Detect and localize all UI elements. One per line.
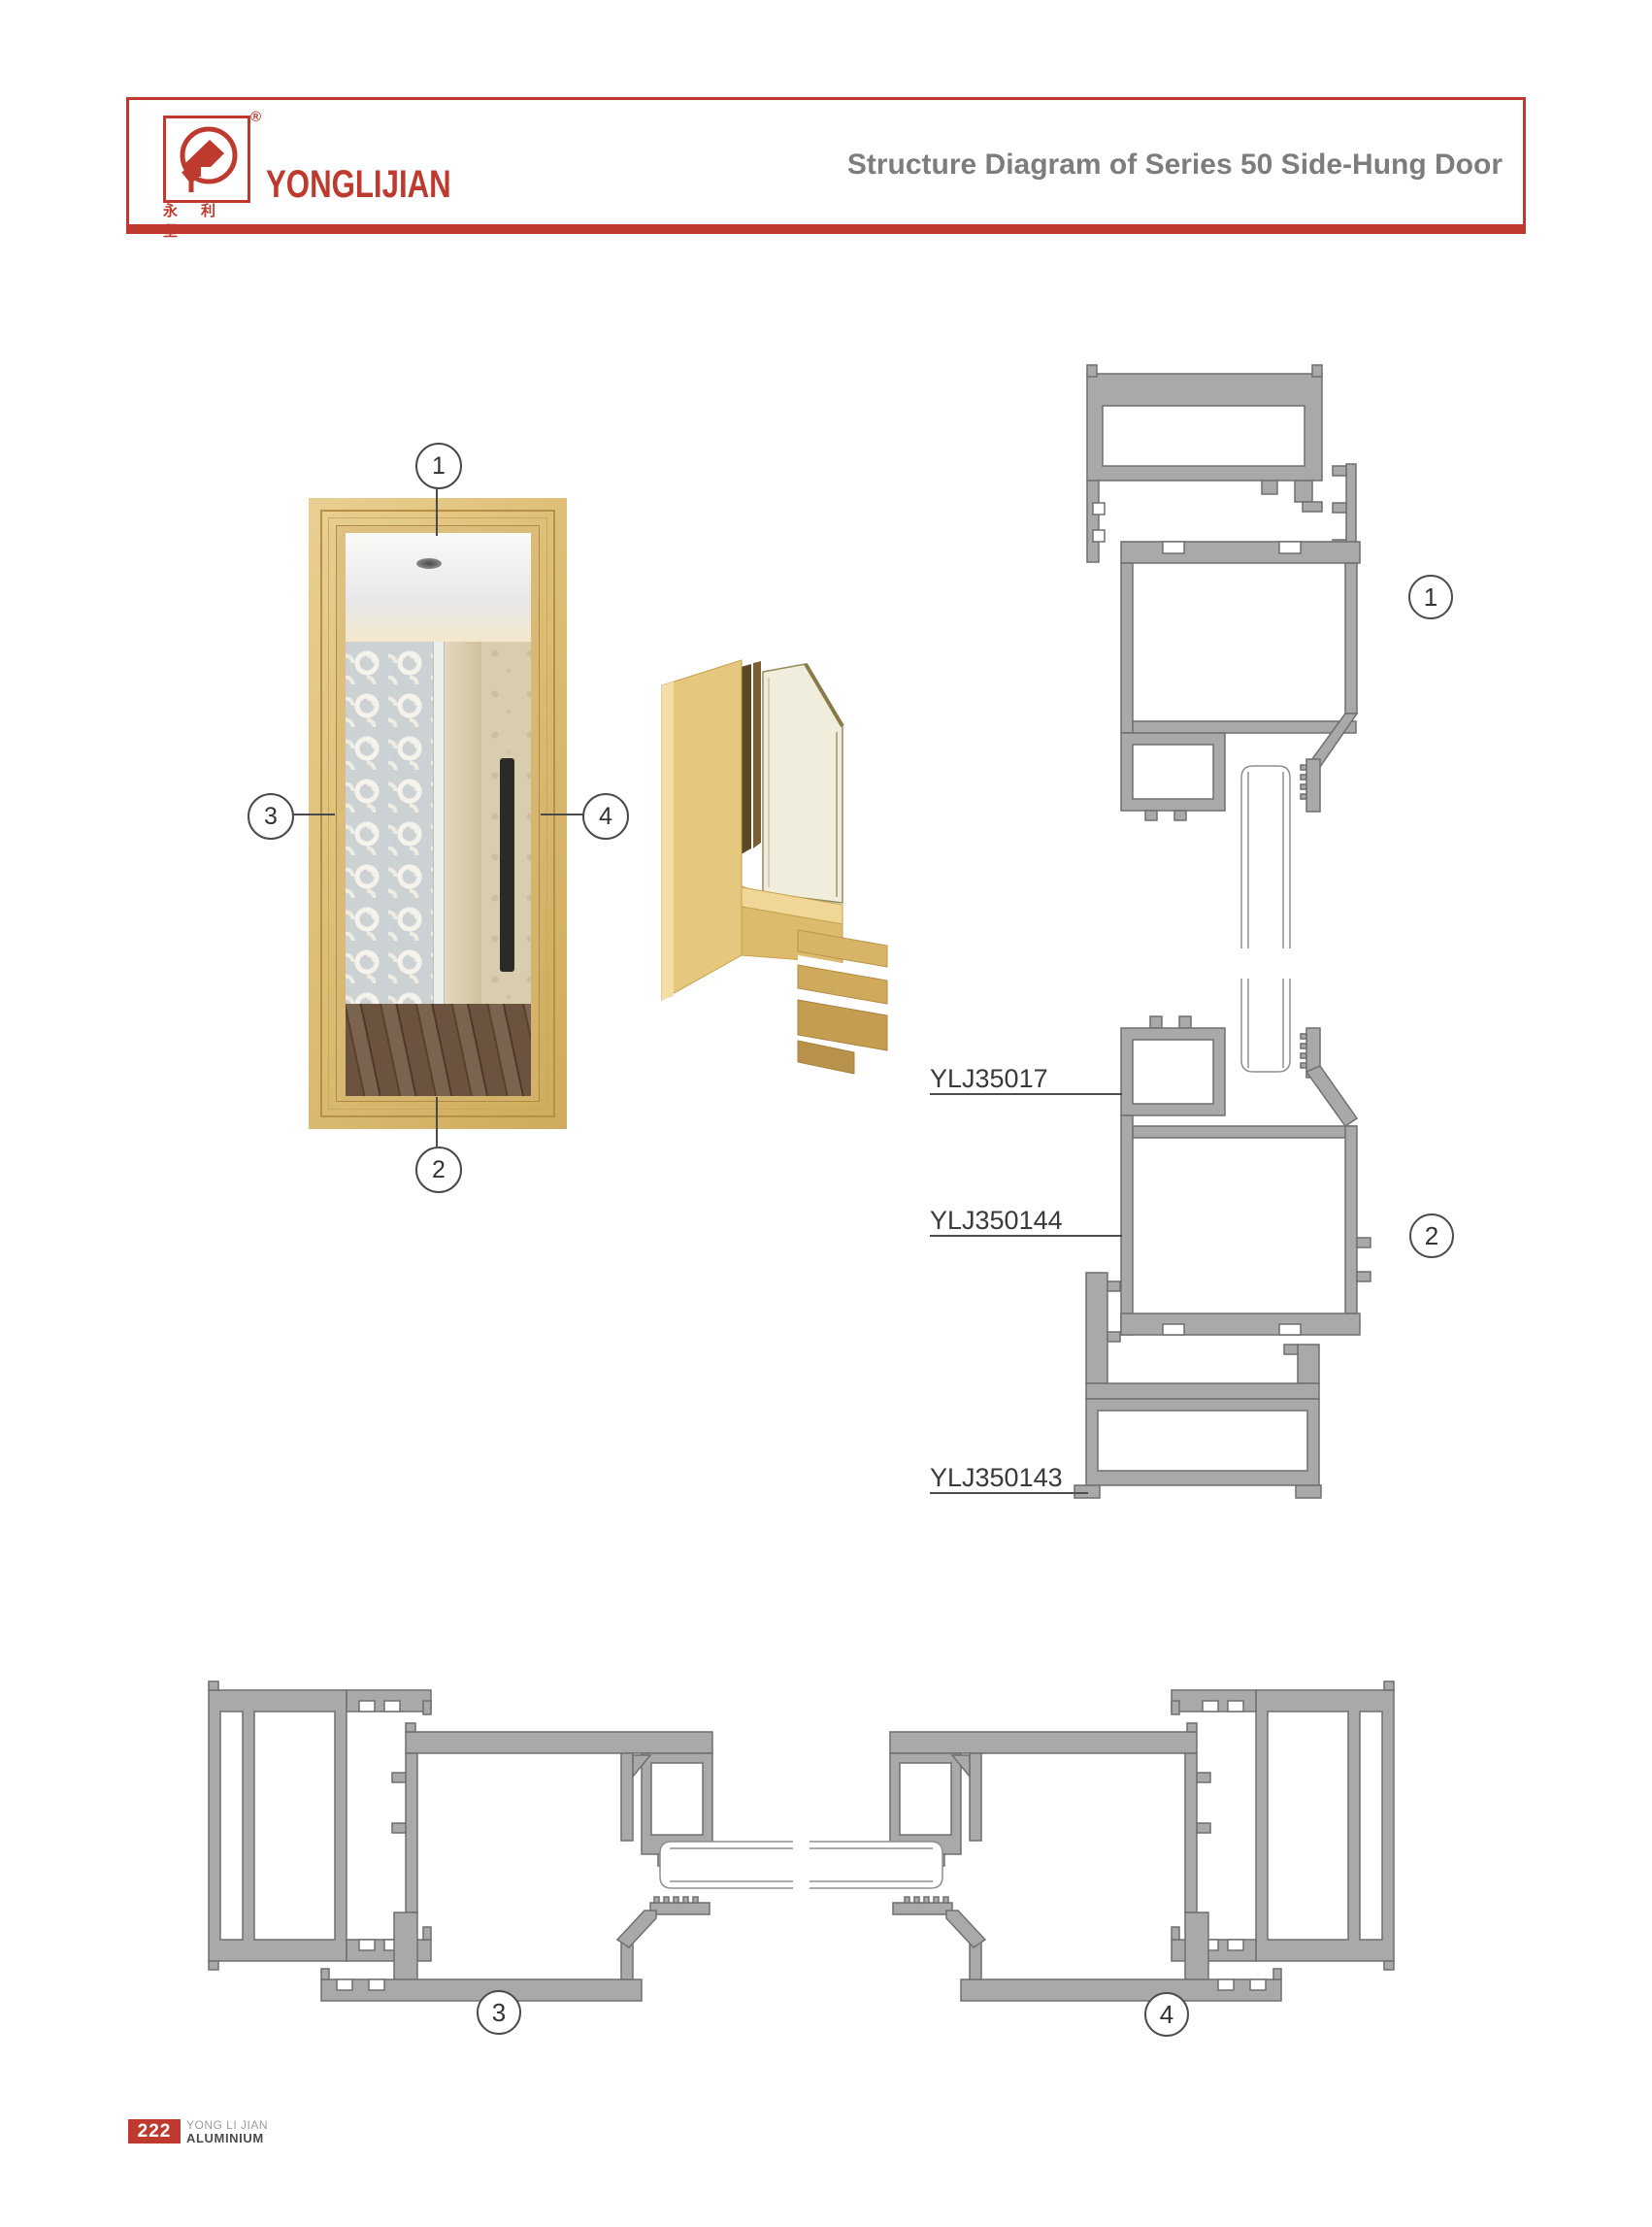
profile-label-ylj350144: YLJ350144 bbox=[930, 1206, 1063, 1236]
section-marker-1: 1 bbox=[1424, 582, 1437, 612]
glass-pane bbox=[763, 664, 843, 903]
gold-slab-highlight bbox=[662, 681, 674, 1000]
ceiling-light bbox=[416, 558, 442, 569]
wood-floor bbox=[346, 1004, 531, 1096]
mirror-frame bbox=[433, 642, 445, 1004]
section-4-assembly bbox=[809, 1681, 1394, 2001]
page-number: 222 bbox=[138, 2121, 172, 2143]
glass-pane-section bbox=[1241, 766, 1290, 1072]
callout-4-leader bbox=[541, 814, 583, 815]
brand-logo-frame bbox=[163, 116, 250, 203]
section-marker-3: 3 bbox=[492, 1998, 506, 2027]
vertical-section-diagram: 1 2 bbox=[1058, 359, 1553, 1534]
page-title: Structure Diagram of Series 50 Side-Hung… bbox=[532, 149, 1503, 182]
interior-door-pane bbox=[445, 642, 481, 1004]
catalog-page: ® 永利坚 YONGLIJIAN Structure Diagram of Se… bbox=[0, 0, 1652, 2227]
profile-label-ylj350143-leader bbox=[930, 1492, 1088, 1494]
door-glass-scene bbox=[346, 533, 531, 1096]
lattice-panel bbox=[346, 642, 433, 1004]
frame-head-profile bbox=[1087, 365, 1322, 562]
profile-label-ylj350143: YLJ350143 bbox=[930, 1463, 1063, 1493]
footer-page-badge: 222 bbox=[128, 2119, 181, 2144]
door-handle bbox=[500, 758, 514, 972]
header-red-bar bbox=[126, 224, 1526, 234]
profile-label-ylj35017-leader bbox=[930, 1093, 1122, 1095]
callout-1: 1 bbox=[415, 443, 462, 489]
section-marker-2: 2 bbox=[1425, 1221, 1438, 1250]
callout-1-leader bbox=[436, 485, 438, 536]
footer-brand-line2: ALUMINIUM bbox=[186, 2131, 264, 2145]
footer-brand-line1: YONG LI JIAN bbox=[186, 2118, 268, 2132]
callout-4: 4 bbox=[582, 793, 629, 840]
callout-3: 3 bbox=[248, 793, 294, 840]
corner-profile-render bbox=[652, 643, 924, 1084]
registered-trademark: ® bbox=[250, 109, 261, 125]
section-3-assembly bbox=[209, 1681, 793, 2001]
brand-wordmark: YONGLIJIAN bbox=[266, 163, 451, 207]
gold-slab-front bbox=[662, 660, 742, 1000]
brand-logo-icon bbox=[166, 118, 248, 200]
sash-top-profile bbox=[1121, 542, 1360, 820]
threshold-profile bbox=[1074, 1273, 1321, 1498]
callout-2: 2 bbox=[415, 1147, 462, 1193]
door-photo bbox=[309, 498, 567, 1129]
profile-label-ylj350144-leader bbox=[930, 1235, 1122, 1237]
profile-foot bbox=[798, 1041, 854, 1074]
callout-3-leader bbox=[290, 814, 335, 815]
ceiling bbox=[346, 533, 531, 642]
glazing-channel-light bbox=[753, 661, 761, 848]
profile-label-ylj35017: YLJ35017 bbox=[930, 1064, 1048, 1094]
callout-2-leader bbox=[436, 1097, 438, 1147]
brand-chinese: 永利坚 bbox=[163, 200, 252, 241]
horizontal-section-diagram: 3 4 bbox=[194, 1679, 1427, 2097]
section-marker-4: 4 bbox=[1160, 2000, 1173, 2029]
